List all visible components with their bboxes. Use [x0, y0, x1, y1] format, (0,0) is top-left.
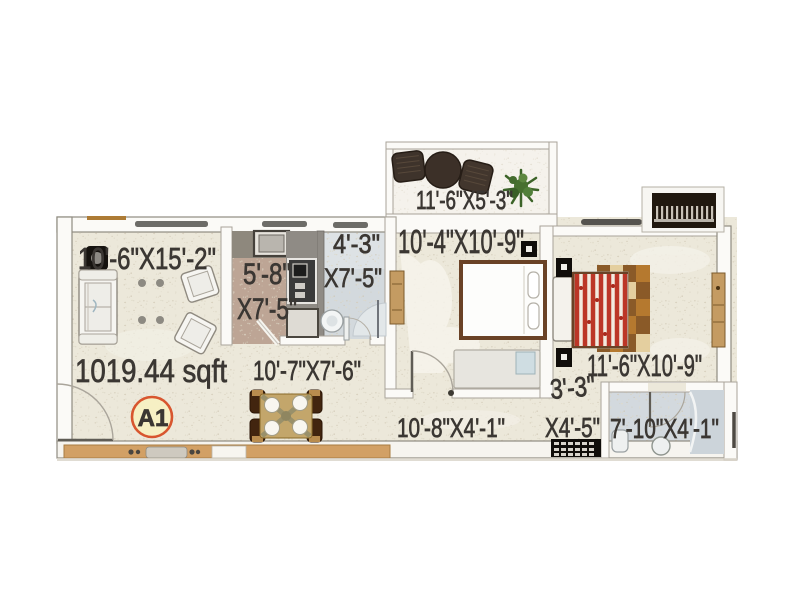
svg-text:11'-6"X5'-3": 11'-6"X5'-3"	[416, 185, 513, 215]
svg-text:X7'-5": X7'-5"	[324, 263, 382, 293]
svg-text:A1: A1	[138, 405, 169, 432]
svg-text:7'-10"X4'-1": 7'-10"X4'-1"	[610, 413, 719, 444]
svg-text:3'-3": 3'-3"	[549, 370, 597, 405]
svg-text:4'-3": 4'-3"	[333, 229, 380, 259]
svg-text:1019.44 sqft: 1019.44 sqft	[75, 353, 227, 389]
svg-text:10'-4"X10'-9": 10'-4"X10'-9"	[398, 223, 524, 260]
svg-text:10'-6"X15'-2": 10'-6"X15'-2"	[78, 241, 216, 276]
svg-text:10'-7"X7'-6": 10'-7"X7'-6"	[253, 355, 361, 386]
svg-text:10'-8"X4'-1": 10'-8"X4'-1"	[397, 413, 505, 443]
svg-text:11'-6"X10'-9": 11'-6"X10'-9"	[587, 348, 702, 383]
svg-text:5'-8": 5'-8"	[243, 258, 291, 291]
svg-text:X7'-5": X7'-5"	[237, 293, 297, 326]
svg-text:X4'-5": X4'-5"	[545, 412, 600, 443]
